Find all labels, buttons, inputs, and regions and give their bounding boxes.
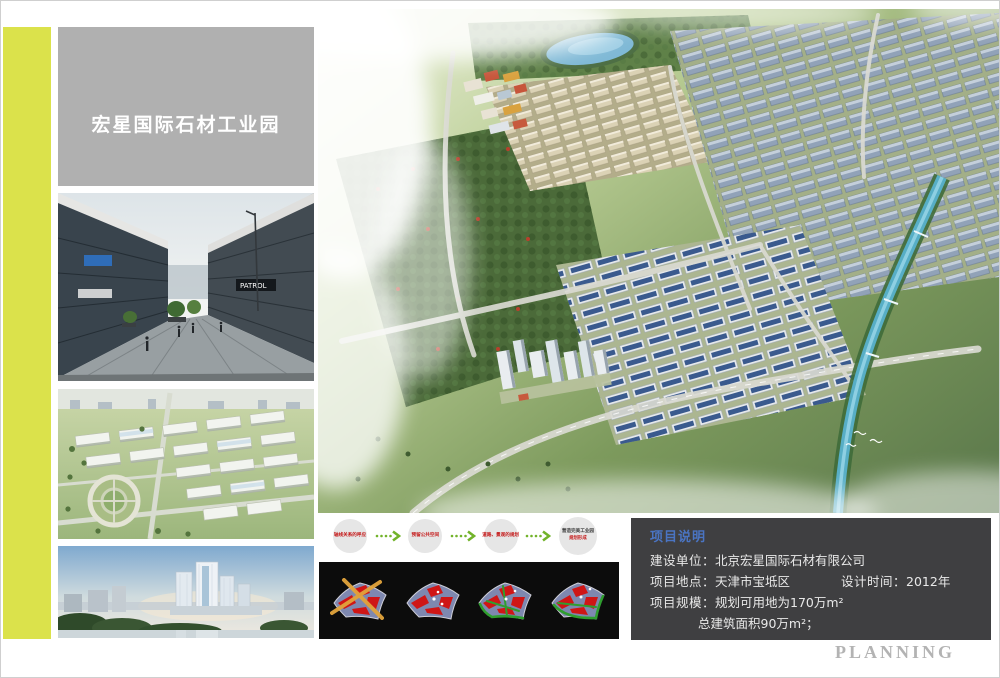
info-label: 设计时间： bbox=[841, 574, 906, 589]
info-row-scale: 项目规模：规划可用地为170万m² bbox=[650, 592, 979, 613]
presentation-board: 宏星国际石材工业园 bbox=[0, 0, 1000, 678]
concept-diagrams-box bbox=[319, 562, 619, 639]
aerial-view-photo bbox=[58, 389, 314, 539]
project-title: 宏星国际石材工业园 bbox=[91, 110, 280, 137]
accent-bar bbox=[3, 27, 51, 639]
flow-step-label: 道路、景观的规划 bbox=[482, 533, 519, 539]
flow-step-4: 营造完美工业园 规划形成 bbox=[559, 517, 597, 555]
blue-signboard bbox=[84, 255, 112, 266]
arrow-right-icon bbox=[375, 530, 401, 542]
info-value: 规划可用地为170万m² bbox=[715, 595, 844, 610]
project-info-panel: 项目说明 建设单位：北京宏星国际石材有限公司 项目地点：天津市宝坻区 设计时间：… bbox=[631, 518, 991, 640]
arrow-right-icon bbox=[450, 530, 476, 542]
masterplan-illustration bbox=[318, 9, 999, 513]
info-value: 2012年 bbox=[906, 574, 950, 589]
info-value: 北京宏星国际石材有限公司 bbox=[715, 553, 865, 568]
design-time: 设计时间：2012年 bbox=[841, 571, 950, 592]
info-row-area: 总建筑面积90万m²； bbox=[650, 613, 979, 634]
design-process-flow: 轴线关系的呼应 预留公共空间 道路、景观的规划 营造完美工业园 规划形成 bbox=[333, 516, 597, 556]
flow-step-3: 道路、景观的规划 bbox=[484, 519, 518, 553]
info-label: 建设单位： bbox=[650, 553, 715, 568]
masterplan-rendering bbox=[318, 9, 999, 513]
concept-diagram-roads bbox=[473, 573, 537, 629]
flow-step-2: 预留公共空间 bbox=[408, 519, 442, 553]
concept-diagram-nodes bbox=[401, 573, 465, 629]
patrol-sign: PATROL bbox=[240, 282, 267, 290]
info-label: 项目地点： bbox=[650, 574, 715, 589]
night-view-photo bbox=[58, 546, 314, 638]
street-view-photo: PATROL bbox=[58, 193, 314, 381]
info-value: 总建筑面积90万m²； bbox=[698, 616, 819, 631]
info-row-location: 项目地点：天津市宝坻区 设计时间：2012年 bbox=[650, 571, 979, 592]
info-value: 天津市宝坻区 bbox=[715, 574, 790, 589]
street-view-illustration: PATROL bbox=[58, 193, 314, 381]
flow-step-label: 轴线关系的呼应 bbox=[334, 533, 366, 539]
info-label: 项目规模： bbox=[650, 595, 715, 610]
aerial-view-illustration bbox=[58, 389, 314, 539]
concept-diagram-axes bbox=[328, 573, 392, 629]
circular-plaza bbox=[90, 477, 138, 525]
concept-diagram-final bbox=[546, 573, 610, 629]
night-view-illustration bbox=[58, 546, 314, 638]
horizon-haze bbox=[58, 389, 314, 409]
arrow-right-icon bbox=[525, 530, 551, 542]
info-row-builder: 建设单位：北京宏星国际石材有限公司 bbox=[650, 550, 979, 571]
info-heading: 项目说明 bbox=[650, 526, 979, 545]
project-title-box: 宏星国际石材工业园 bbox=[58, 27, 314, 186]
water bbox=[58, 630, 314, 638]
flow-step-label: 预留公共空间 bbox=[412, 533, 440, 539]
planning-watermark: PLANNING bbox=[835, 642, 955, 663]
flow-step-1: 轴线关系的呼应 bbox=[333, 519, 367, 553]
flow-step-sublabel: 规划形成 bbox=[569, 536, 587, 543]
